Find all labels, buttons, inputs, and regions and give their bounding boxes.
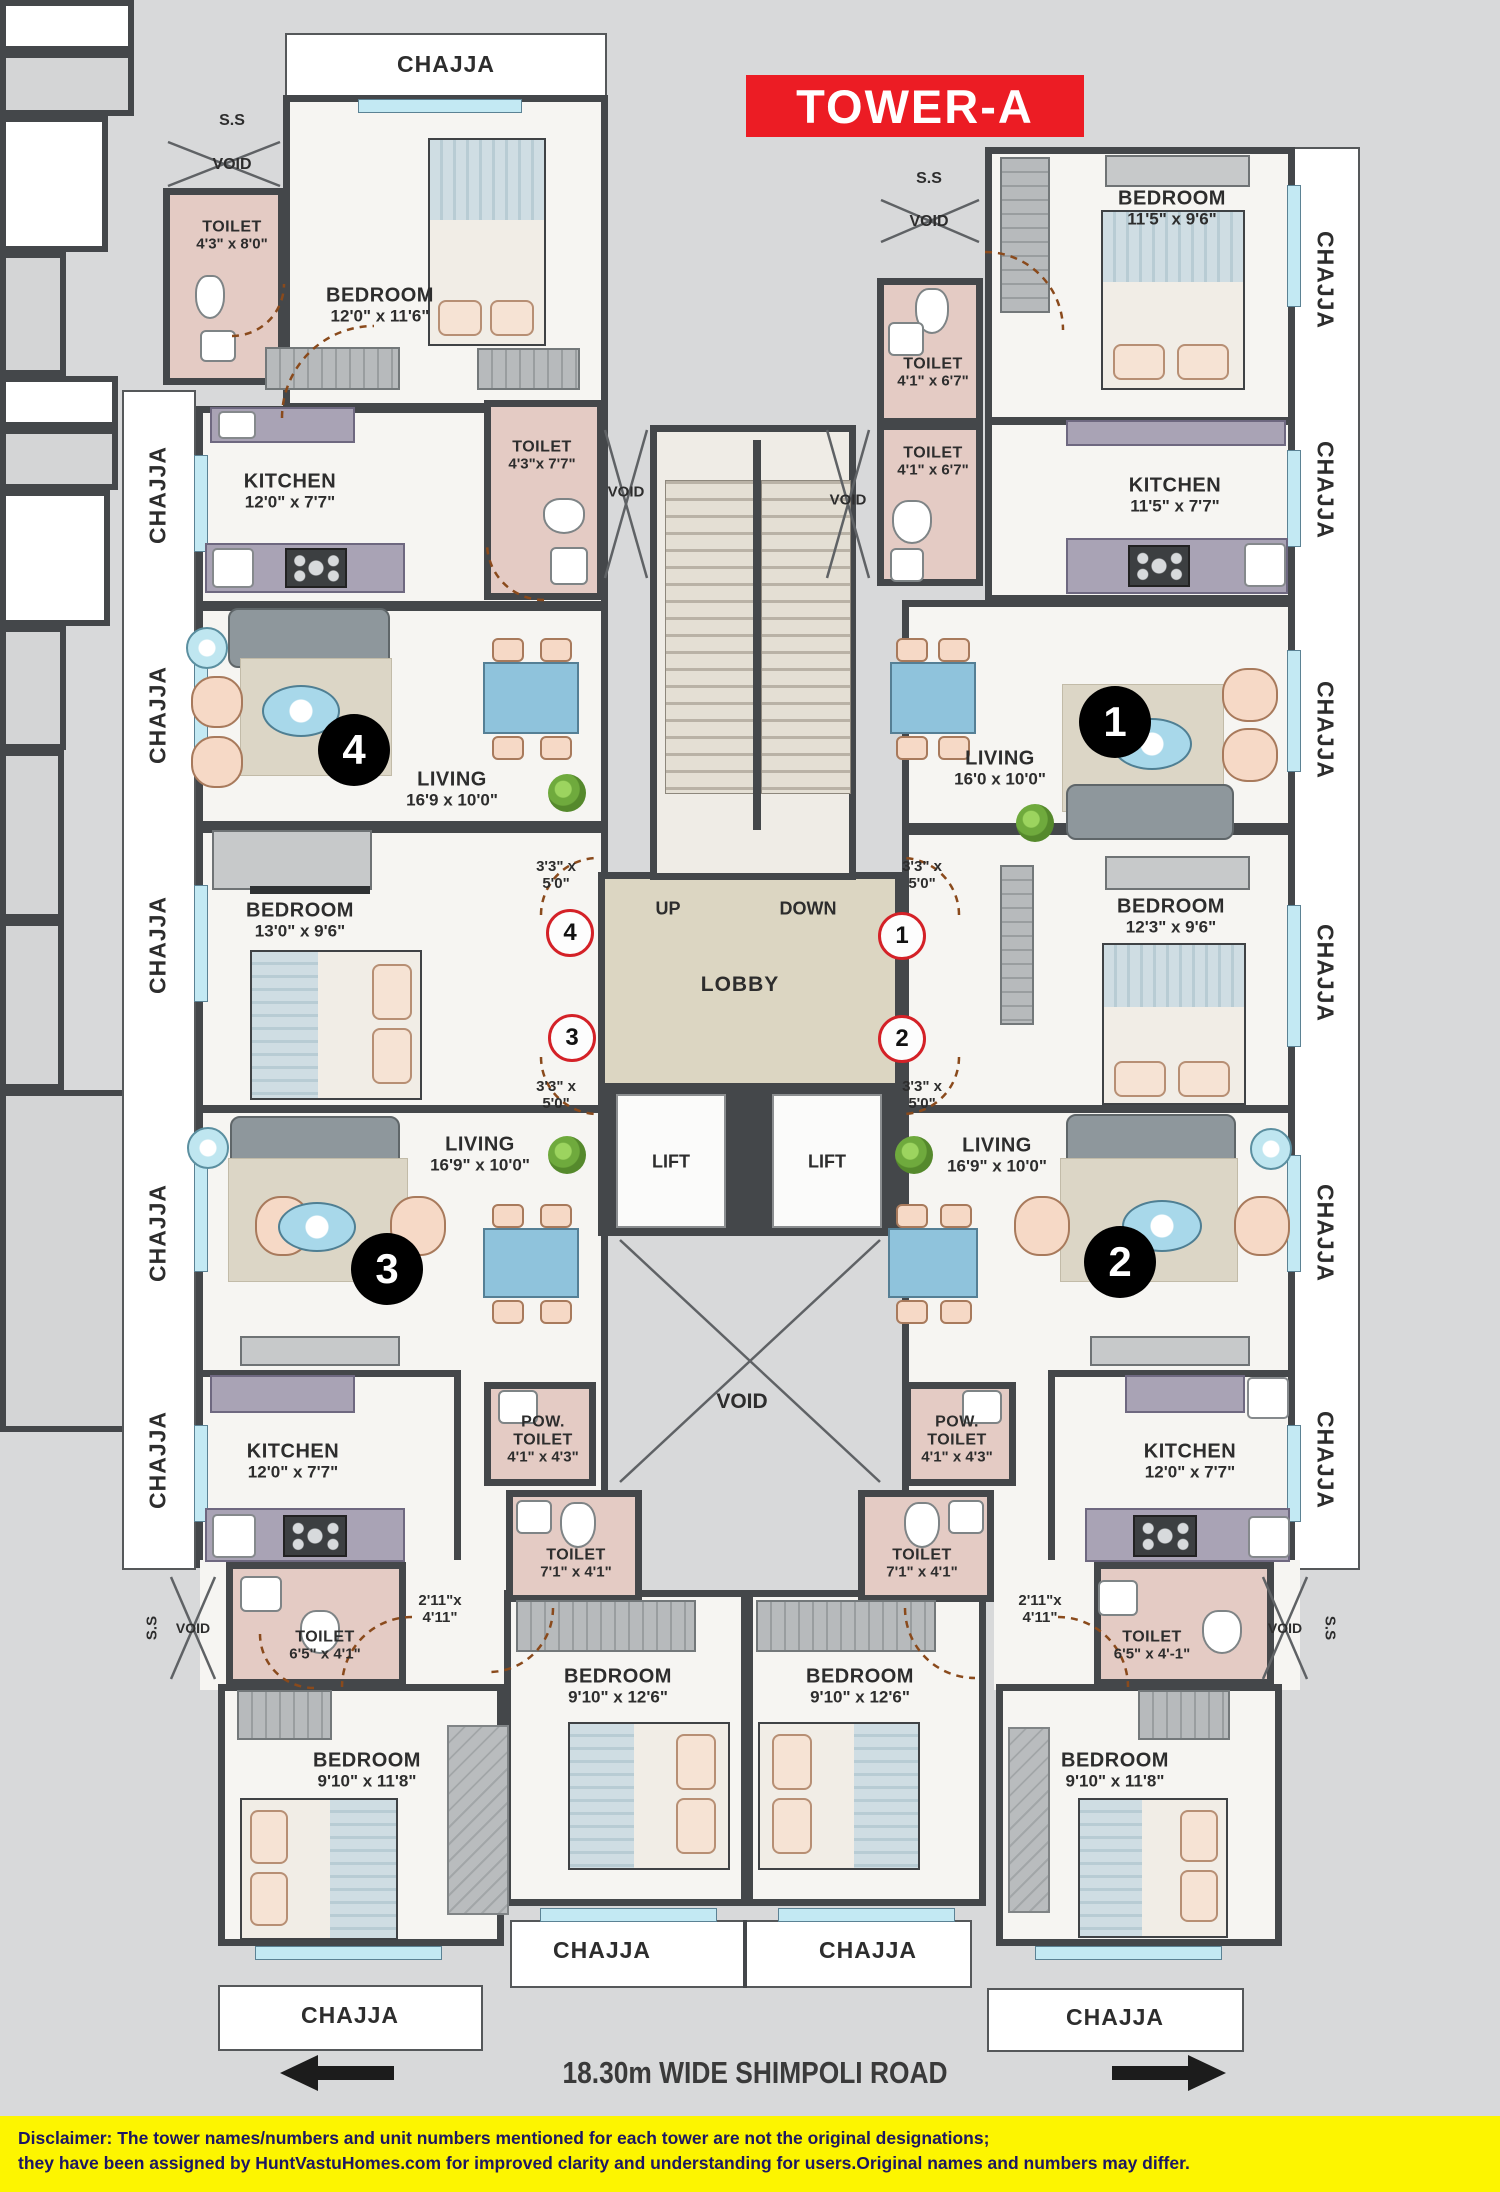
unit-badge-3: 3 (351, 1233, 423, 1305)
window (540, 1908, 717, 1922)
room-label-living-u4: LIVING16'9 x 10'0" (406, 768, 498, 809)
stair-divider (753, 440, 761, 830)
bed-pillow (1113, 344, 1165, 380)
armchair (191, 736, 243, 788)
armchair (1222, 728, 1278, 782)
wardrobe (1138, 1690, 1230, 1740)
room-label-living-u3: LIVING16'9" x 10'0" (430, 1133, 530, 1174)
bed-pillow (676, 1734, 716, 1790)
coffee-table (278, 1202, 356, 1252)
ss-box-bottom-left (0, 116, 108, 252)
left-arrow-icon (316, 2066, 394, 2080)
bed-pillow (250, 1872, 288, 1926)
unit-badge-1: 1 (1079, 686, 1151, 758)
unit-badge-2: 2 (1084, 1226, 1156, 1298)
void-label: VOID (716, 1390, 767, 1414)
bed-pillow (1180, 1870, 1218, 1922)
kitchen-sink (212, 548, 254, 588)
room-label-pow-toilet-u2: POW.TOILET4'1" x 4'3" (921, 1414, 992, 1467)
tv-console (1105, 155, 1250, 187)
room-label-living-u2: LIVING16'9" x 10'0" (947, 1134, 1047, 1175)
up-label: UP (655, 899, 680, 920)
tv-console (1090, 1336, 1250, 1366)
disclaimer-line-1: Disclaimer: The tower names/numbers and … (18, 2126, 1500, 2151)
void-label: VOID (909, 213, 948, 231)
stove-icon (1133, 1515, 1197, 1557)
toilet-basin (888, 322, 924, 356)
room-label-bedroom-bottom-u3: BEDROOM9'10" x 11'8" (313, 1749, 421, 1790)
toilet-basin (200, 330, 236, 362)
entry-number-3: 3 (548, 1014, 596, 1062)
left-arrow-icon (280, 2055, 318, 2091)
dining-chair (896, 1300, 928, 1324)
chajja-label: CHAJJA (301, 2003, 399, 2029)
kitchen-sink (1248, 1516, 1290, 1558)
entry-number-4: 4 (546, 909, 594, 957)
room-label-toilet-small-u2: TOILET6'5" x 4'-1" (1114, 1629, 1190, 1664)
plant-icon (548, 774, 586, 812)
passage-label: 3'3" x5'0" (902, 1079, 942, 1113)
bed-pillow (490, 300, 534, 336)
kitchen-counter (1125, 1375, 1245, 1413)
window (778, 1908, 955, 1922)
stair-flight-up (665, 480, 755, 794)
floor-plan-canvas: CHAJJA CHAJJA CHAJJA CHAJJA CHAJJA CHAJJ… (0, 0, 1500, 2192)
bed-blanket (570, 1724, 634, 1868)
room-label-toilet-small-u3: TOILET6'5" x 4'1" (289, 1629, 360, 1664)
window (1287, 1155, 1301, 1272)
dining-chair (896, 1204, 928, 1228)
bed-pillow (1180, 1810, 1218, 1862)
void-shaft-bottom-left (0, 252, 66, 376)
right-arrow-icon (1112, 2066, 1190, 2080)
dining-chair (896, 736, 928, 760)
ss-label: S.S (144, 1616, 161, 1640)
tv (250, 886, 370, 894)
wall (743, 1920, 747, 1988)
window (194, 885, 208, 1002)
room-label-kitchen-u2: KITCHEN12'0" x 7'7" (1144, 1440, 1236, 1481)
window (1287, 185, 1301, 307)
room-label-bedroom-top-u1: BEDROOM11'5" x 9'6" (1118, 187, 1226, 228)
disclaimer-bar: Disclaimer: The tower names/numbers and … (0, 2116, 1500, 2192)
room-label-bedroom-center-u2: BEDROOM9'10" x 12'6" (806, 1665, 914, 1706)
ss-label: S.S (916, 170, 942, 188)
room-label-toilet-mid-u4: TOILET4'3"x 7'7" (508, 439, 575, 474)
road-label: 18.30m WIDE SHIMPOLI ROAD (562, 2055, 947, 2091)
room-label-pow-toilet-u3: POW.TOILET4'1" x 4'3" (507, 1414, 578, 1467)
ss-label: S.S (219, 112, 245, 130)
room-label-bedroom-side-u4: BEDROOM13'0" x 9'6" (246, 899, 354, 940)
dining-chair (492, 736, 524, 760)
bed-blanket (1104, 945, 1244, 1007)
room-label-toilet-top-u4: TOILET4'3" x 8'0" (196, 219, 267, 254)
tv-console (240, 1336, 400, 1366)
bed-pillow (676, 1798, 716, 1854)
staircase (650, 425, 856, 880)
side-table (187, 1127, 229, 1169)
plant-icon (1016, 804, 1054, 842)
room-label-bedroom-center-u3: BEDROOM9'10" x 12'6" (564, 1665, 672, 1706)
chajja-label: CHAJJA (1312, 441, 1339, 539)
chajja-label: CHAJJA (145, 1184, 172, 1282)
service-duct (447, 1725, 509, 1915)
entry-number-1: 1 (878, 912, 926, 960)
bed-blanket (1080, 1800, 1142, 1936)
tower-title-banner: TOWER-A (746, 75, 1084, 137)
room-label-kitchen-u3: KITCHEN12'0" x 7'7" (247, 1440, 339, 1481)
passage-label: 3'3" x5'0" (536, 1079, 576, 1113)
window (255, 1946, 442, 1960)
wardrobe (1000, 865, 1034, 1025)
bed-pillow (772, 1798, 812, 1854)
ss-box-top-left (0, 0, 134, 52)
void-label: VOID (608, 484, 645, 501)
bed (1102, 943, 1246, 1105)
armchair (191, 676, 243, 728)
ss-label: S.S (1322, 1616, 1339, 1640)
window (194, 1155, 208, 1272)
bed (758, 1722, 920, 1870)
window (1287, 450, 1301, 547)
stove-icon (1128, 545, 1190, 587)
toilet-wc (195, 275, 225, 319)
disclaimer-line-2: they have been assigned by HuntVastuHome… (18, 2151, 1500, 2176)
bed (250, 950, 422, 1100)
void-label: VOID (830, 492, 867, 509)
side-table (186, 627, 228, 669)
dining-table (888, 1228, 978, 1298)
void-shaft-bottom-right (0, 626, 66, 750)
toilet-basin (516, 1500, 552, 1534)
void-shaft-stair-left (0, 750, 64, 920)
toilet-wc (1202, 1610, 1242, 1654)
dining-chair (540, 638, 572, 662)
armchair (1014, 1196, 1070, 1256)
chajja-label: CHAJJA (1312, 1184, 1339, 1282)
toilet-wc (904, 1502, 940, 1548)
dining-table (483, 662, 579, 734)
dining-table (483, 1228, 579, 1298)
service-duct (1008, 1727, 1050, 1913)
dining-chair (540, 1204, 572, 1228)
stair-flight-down (761, 480, 851, 794)
lift-label: LIFT (652, 1152, 690, 1173)
plant-icon (895, 1136, 933, 1174)
bed-blanket (854, 1724, 918, 1868)
chajja-label: CHAJJA (1312, 1411, 1339, 1509)
down-label: DOWN (780, 899, 837, 920)
chajja-label: CHAJJA (1066, 2005, 1164, 2031)
armchair (1222, 668, 1278, 722)
void-shaft-top-left (0, 52, 134, 116)
passage-label: 2'11"x4'11" (1018, 1593, 1061, 1627)
chajja-label: CHAJJA (1312, 231, 1339, 329)
wardrobe (756, 1600, 936, 1652)
dining-chair (938, 638, 970, 662)
ss-box-top-right (0, 376, 118, 428)
bed-pillow (1114, 1061, 1166, 1097)
chajja-label: CHAJJA (145, 896, 172, 994)
plant-icon (548, 1136, 586, 1174)
lift-label: LIFT (808, 1152, 846, 1173)
bed (1078, 1798, 1228, 1938)
window (1035, 1946, 1222, 1960)
toilet-basin (948, 1500, 984, 1534)
kitchen-sink (1247, 1377, 1289, 1419)
void-label: VOID (1268, 1620, 1302, 1636)
stove-icon (285, 548, 347, 588)
dining-chair (492, 638, 524, 662)
chajja-label: CHAJJA (145, 1411, 172, 1509)
bed-blanket (430, 140, 544, 220)
room-label-bedroom-bottom-u2: BEDROOM9'10" x 11'8" (1061, 1749, 1169, 1790)
bed-pillow (1177, 344, 1229, 380)
lobby-label: LOBBY (701, 973, 780, 997)
bed-pillow (372, 1028, 412, 1084)
wardrobe (265, 347, 400, 390)
room-label-toilet-b-u1: TOILET4'1" x 6'7" (897, 445, 968, 480)
passage-label: 3'3" x5'0" (902, 859, 942, 893)
wardrobe (1000, 157, 1050, 313)
bed-pillow (1178, 1061, 1230, 1097)
bed (568, 1722, 730, 1870)
armchair (1234, 1196, 1290, 1256)
room-label-bedroom-top-u4: BEDROOM12'0" x 11'6" (326, 284, 434, 325)
bed-blanket (330, 1800, 396, 1938)
kitchen-sink (218, 411, 256, 439)
dining-chair (492, 1204, 524, 1228)
chajja-label: CHAJJA (1312, 681, 1339, 779)
right-arrow-icon (1188, 2055, 1226, 2091)
side-table (1250, 1128, 1292, 1170)
tv-console (1105, 856, 1250, 890)
room-label-toilet-a-u1: TOILET4'1" x 6'7" (897, 356, 968, 391)
chajja-label: CHAJJA (819, 1938, 917, 1964)
chajja-label: CHAJJA (145, 666, 172, 764)
window (358, 99, 522, 113)
kitchen-sink (212, 1514, 256, 1558)
room-label-toilet-mid-u3: TOILET7'1" x 4'1" (540, 1547, 611, 1582)
chajja-label: CHAJJA (1312, 924, 1339, 1022)
entry-number-2: 2 (878, 1015, 926, 1063)
bed-pillow (438, 300, 482, 336)
dining-table (890, 662, 976, 734)
bed (428, 138, 546, 346)
dining-chair (540, 736, 572, 760)
room-label-toilet-mid-u2: TOILET7'1" x 4'1" (886, 1547, 957, 1582)
toilet-basin (1098, 1580, 1138, 1616)
wardrobe (237, 1690, 332, 1740)
wardrobe (516, 1600, 696, 1652)
dining-chair (896, 638, 928, 662)
void-label: VOID (176, 1620, 210, 1636)
chajja-label: CHAJJA (145, 446, 172, 544)
chajja-band-right (1293, 147, 1360, 1570)
kitchen-counter (1066, 420, 1286, 446)
bed-blanket (252, 952, 318, 1098)
bed-pillow (772, 1734, 812, 1790)
dining-chair (940, 1204, 972, 1228)
wardrobe (477, 348, 580, 390)
stove-icon (283, 1515, 347, 1557)
window (194, 455, 208, 552)
void-label: VOID (212, 156, 251, 174)
kitchen-counter (210, 1375, 355, 1413)
unit-badge-4: 4 (318, 714, 390, 786)
void-shaft-top-right (0, 428, 118, 490)
dining-chair (940, 1300, 972, 1324)
passage-label: 3'3" x5'0" (536, 859, 576, 893)
ss-box-bottom-right (0, 490, 110, 626)
toilet-wc (543, 498, 585, 534)
toilet-basin (550, 547, 588, 585)
tv-console (212, 830, 372, 890)
room-label-living-u1: LIVING16'0 x 10'0" (954, 747, 1046, 788)
toilet-wc (892, 500, 932, 544)
passage-label: 2'11"x4'11" (418, 1593, 461, 1627)
toilet-basin (890, 548, 924, 582)
chajja-label: CHAJJA (397, 52, 495, 78)
bed (240, 1798, 398, 1940)
window (1287, 650, 1301, 772)
chajja-label: CHAJJA (553, 1938, 651, 1964)
bed-pillow (250, 1810, 288, 1864)
void-shaft-stair-right (0, 920, 64, 1090)
toilet-basin (240, 1576, 282, 1612)
toilet-wc (560, 1502, 596, 1548)
room-label-kitchen-u1: KITCHEN11'5" x 7'7" (1129, 474, 1221, 515)
bed-pillow (372, 964, 412, 1020)
room-label-kitchen-u4: KITCHEN12'0" x 7'7" (244, 470, 336, 511)
sofa (1066, 784, 1234, 840)
dining-chair (540, 1300, 572, 1324)
dining-chair (492, 1300, 524, 1324)
window (1287, 905, 1301, 1047)
room-label-bedroom-side-u1: BEDROOM12'3" x 9'6" (1117, 895, 1225, 936)
kitchen-sink (1244, 543, 1286, 587)
bed (1101, 210, 1245, 390)
